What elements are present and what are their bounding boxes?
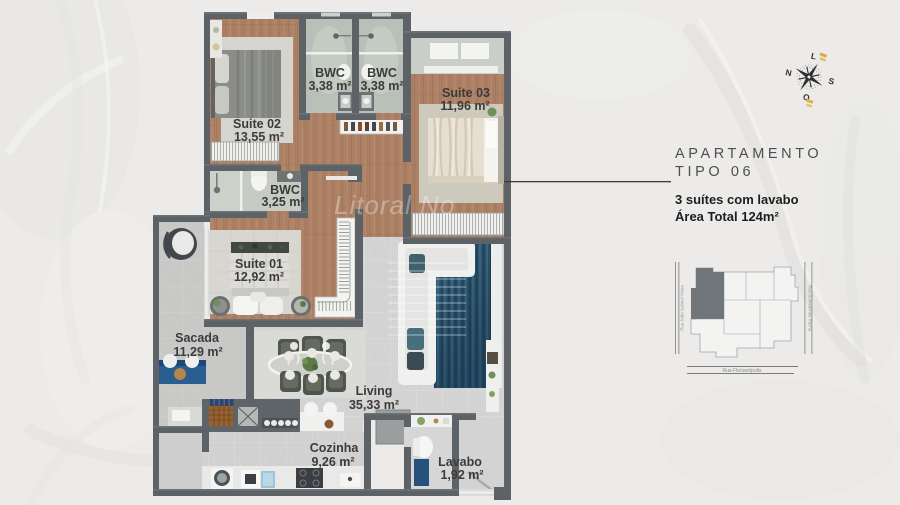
- svg-text:3 suítes com lavabo: 3 suítes com lavabo: [675, 192, 799, 207]
- svg-text:Suite 03: Suite 03: [442, 86, 490, 100]
- svg-text:APARTAMENTO: APARTAMENTO: [675, 146, 822, 162]
- svg-text:12,92 m²: 12,92 m²: [234, 270, 284, 284]
- svg-text:Sacada: Sacada: [175, 331, 220, 345]
- svg-text:BWC: BWC: [367, 66, 397, 80]
- svg-text:Cozinha: Cozinha: [310, 441, 360, 455]
- svg-text:Rua João Gabriel Vieira: Rua João Gabriel Vieira: [680, 285, 685, 331]
- svg-text:11,96 m²: 11,96 m²: [440, 99, 489, 113]
- svg-text:35,33 m²: 35,33 m²: [349, 398, 399, 412]
- svg-text:9,26 m²: 9,26 m²: [311, 455, 354, 469]
- svg-text:3,25 m²: 3,25 m²: [261, 195, 304, 209]
- svg-text:11,29 m²: 11,29 m²: [173, 345, 222, 359]
- svg-text:Living: Living: [356, 384, 393, 398]
- svg-text:Rua Gumercindo Rocha: Rua Gumercindo Rocha: [808, 285, 813, 332]
- svg-text:Suite 02: Suite 02: [233, 117, 281, 131]
- svg-text:BWC: BWC: [315, 66, 345, 80]
- svg-text:Rua Florianópolis: Rua Florianópolis: [723, 368, 762, 374]
- svg-text:Lavabo: Lavabo: [438, 455, 482, 469]
- svg-text:3,38 m²: 3,38 m²: [360, 79, 403, 93]
- svg-text:Litoral No: Litoral No: [334, 190, 455, 220]
- svg-text:Área Total 124m²: Área Total 124m²: [675, 209, 779, 224]
- svg-text:TIPO 06: TIPO 06: [675, 164, 754, 180]
- svg-text:1,92 m²: 1,92 m²: [440, 468, 483, 482]
- svg-text:13,55 m²: 13,55 m²: [234, 130, 284, 144]
- svg-text:Suite 01: Suite 01: [235, 257, 283, 271]
- svg-text:3,38 m²: 3,38 m²: [308, 79, 351, 93]
